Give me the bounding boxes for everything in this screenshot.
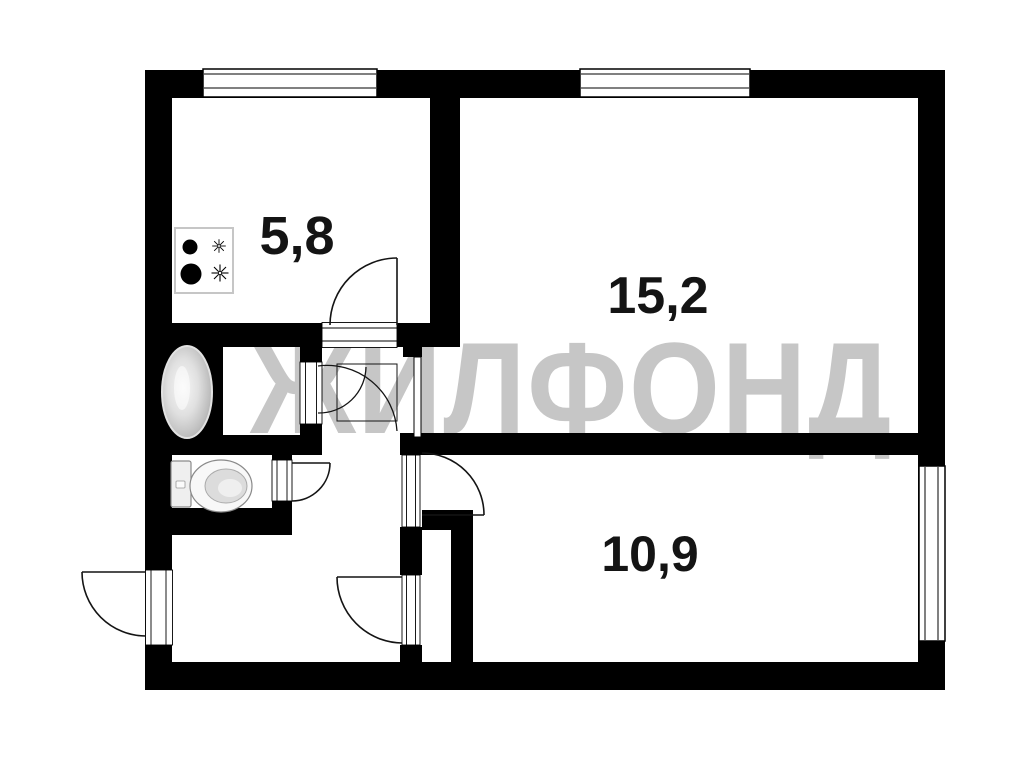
wall-outer-bottom (145, 662, 945, 690)
window-living-room (580, 69, 750, 97)
room-label-living-room: 15,2 (607, 267, 708, 325)
floor-plan-svg: ЖИЛФОНД (0, 0, 1023, 768)
wall-hall-bottom (400, 645, 422, 668)
stove-icon (175, 228, 233, 293)
kitchen-door-jamb (322, 323, 397, 348)
room-label-bedroom: 10,9 (601, 526, 698, 582)
wall-kitchen-living-divider (430, 98, 460, 327)
wall-bathroom-right-upper (300, 347, 322, 363)
wall-closet-right (451, 530, 473, 665)
toilet-icon (171, 460, 252, 512)
room-label-kitchen: 5,8 (259, 206, 334, 266)
apartment-floor-plan: ЖИЛФОНД (0, 0, 1023, 768)
bathtub-icon (162, 346, 212, 438)
gas-flame-icon (212, 265, 229, 282)
toilet-door-jamb (272, 460, 292, 501)
stove-burner-small-icon (183, 240, 198, 255)
wall-hall-top-block (403, 340, 422, 357)
wall-closet-top (422, 510, 473, 530)
gas-flame-icon (212, 239, 226, 253)
entrance-door-jamb (146, 570, 173, 645)
window-bedroom (919, 466, 945, 641)
window-kitchen (203, 69, 377, 97)
wall-living-bedroom-divider (400, 433, 920, 455)
bathroom-door-jamb (300, 362, 322, 424)
bedroom-door-jamb (402, 455, 420, 527)
closet-door-jamb (402, 575, 420, 645)
glazed-partition (414, 357, 421, 437)
stove-burner-large-icon (181, 264, 202, 285)
wall-hall-mid (400, 527, 422, 575)
